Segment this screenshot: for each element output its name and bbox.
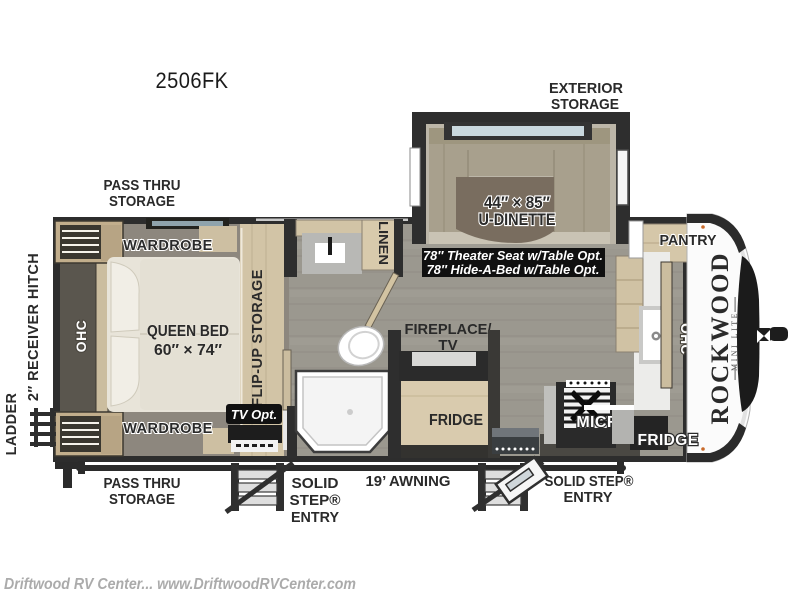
svg-text:PANTRY: PANTRY <box>660 232 717 249</box>
svg-text:ENTRY: ENTRY <box>291 509 339 526</box>
svg-text:U-DINETTE: U-DINETTE <box>479 211 556 229</box>
svg-text:EXTERIOR: EXTERIOR <box>549 80 623 97</box>
svg-text:FRIDGE: FRIDGE <box>638 432 699 449</box>
svg-text:Driftwood RV Center... www.Dri: Driftwood RV Center... www.DriftwoodRVCe… <box>4 576 356 593</box>
svg-text:PASS THRU: PASS THRU <box>104 177 181 194</box>
svg-text:19’ AWNING: 19’ AWNING <box>366 473 451 490</box>
svg-text:78″ Theater Seat w/Table Opt.: 78″ Theater Seat w/Table Opt. <box>423 248 603 263</box>
svg-text:PASS THRU: PASS THRU <box>104 475 181 492</box>
svg-text:SOLID STEP®: SOLID STEP® <box>545 473 634 490</box>
svg-text:STORAGE: STORAGE <box>109 491 175 508</box>
svg-text:44″ × 85″: 44″ × 85″ <box>484 194 550 212</box>
svg-text:LADDER: LADDER <box>4 392 20 455</box>
svg-text:SOLID: SOLID <box>292 475 339 492</box>
svg-text:OHC: OHC <box>73 320 89 353</box>
svg-text:ENTRY: ENTRY <box>564 489 613 506</box>
svg-text:FIREPLACE/: FIREPLACE/ <box>405 321 493 338</box>
svg-text:FRIDGE: FRIDGE <box>429 412 483 429</box>
svg-text:LINEN: LINEN <box>376 221 391 265</box>
svg-text:STORAGE: STORAGE <box>551 96 619 113</box>
svg-text:WARDROBE: WARDROBE <box>123 421 212 437</box>
svg-text:QUEEN BED: QUEEN BED <box>147 323 229 340</box>
svg-text:TV Opt.: TV Opt. <box>231 407 277 422</box>
svg-text:2″ RECEIVER HITCH: 2″ RECEIVER HITCH <box>26 253 42 401</box>
svg-text:WARDROBE: WARDROBE <box>123 238 212 254</box>
svg-text:2506FK: 2506FK <box>156 68 229 93</box>
svg-text:78″ Hide-A-Bed w/Table Opt.: 78″ Hide-A-Bed w/Table Opt. <box>427 262 600 277</box>
svg-text:FLIP-UP STORAGE: FLIP-UP STORAGE <box>250 269 266 407</box>
svg-text:STEP®: STEP® <box>290 492 341 509</box>
svg-text:60″ × 74″: 60″ × 74″ <box>154 342 222 359</box>
svg-text:MINI LITE: MINI LITE <box>730 311 739 371</box>
svg-text:STORAGE: STORAGE <box>109 193 175 210</box>
